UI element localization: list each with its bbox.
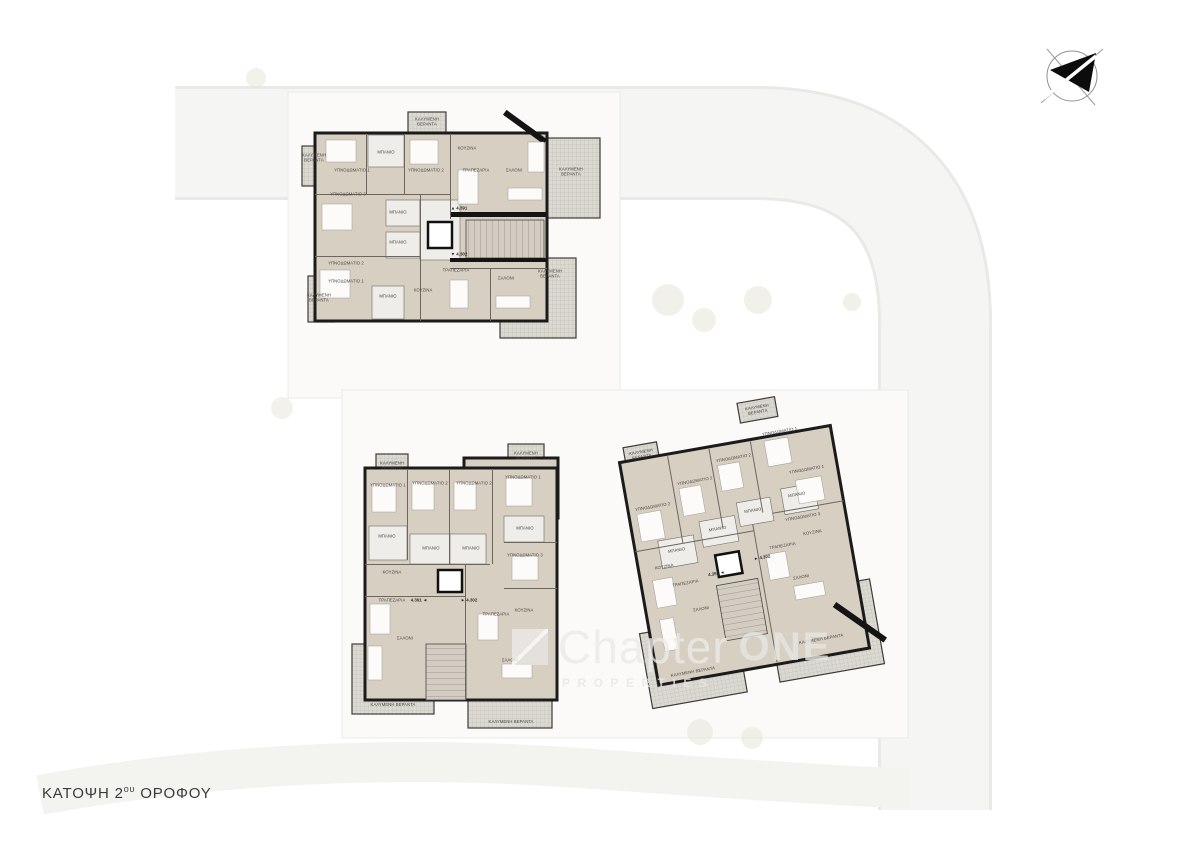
- room-label: ΚΑΛΥΜΕΝΗΒΕΡΑΝΤΑ: [559, 166, 583, 176]
- plan-title: ΚΑΤΟΨΗ 2ου ΟΡΟΦΟΥ: [42, 784, 212, 802]
- room-label: ΜΠΑΝΙΟ: [422, 546, 440, 551]
- level-note: ▼ 4.302: [451, 252, 468, 257]
- room-label: ΥΠΝΟΔΩΜΑΤΙΟ 2: [412, 481, 448, 486]
- room-label: ΚΟΥΖΙΝΑ: [383, 570, 402, 575]
- room-label: ΥΠΝΟΔΩΜΑΤΙΟ 1: [328, 279, 364, 284]
- furniture: [508, 188, 542, 200]
- room-label: ΣΑΛΟΝΙ: [502, 658, 518, 663]
- elevator-shaft: [438, 570, 462, 592]
- room-label: ΜΠΑΝΙΟ: [516, 526, 534, 531]
- room-label: ΣΑΛΟΝΙ: [506, 168, 522, 173]
- floor-area: [620, 425, 870, 685]
- room-label: ΥΠΝΟΔΩΜΑΤΙΟ 3: [330, 192, 366, 197]
- room-label: ΥΠΝΟΔΩΜΑΤΙΟ 1: [334, 168, 370, 173]
- furniture: [372, 484, 396, 512]
- interior-wall: [407, 470, 408, 560]
- bathroom-area: [386, 232, 420, 258]
- room-label: ΥΠΝΟΔΩΜΑΤΙΟ 1: [505, 475, 541, 480]
- room-label: ΚΟΥΖΙΝΑ: [414, 288, 433, 293]
- interior-wall: [504, 588, 557, 589]
- interior-wall: [420, 194, 421, 321]
- furniture: [412, 482, 434, 510]
- interior-wall: [449, 470, 450, 564]
- building-top-plan: ΥΠΝΟΔΩΜΑΤΙΟ 1ΜΠΑΝΙΟΥΠΝΟΔΩΜΑΤΙΟ 2ΚΟΥΖΙΝΑΤ…: [300, 108, 602, 343]
- furniture: [679, 485, 706, 516]
- furniture: [637, 510, 665, 542]
- furniture: [496, 296, 530, 308]
- interior-wall: [365, 564, 490, 565]
- veranda-area: [543, 138, 600, 218]
- room-label: ΤΡΑΠΕΖΑΡΙΑ: [463, 168, 490, 173]
- room-label: ΤΡΑΠΕΖΑΡΙΑ: [483, 612, 510, 617]
- interior-wall: [366, 135, 367, 195]
- furniture: [506, 478, 532, 506]
- floor-plan-canvas: ΥΠΝΟΔΩΜΑΤΙΟ 1ΜΠΑΝΙΟΥΠΝΟΔΩΜΑΤΙΟ 2ΚΟΥΖΙΝΑΤ…: [0, 0, 1200, 849]
- room-label: ΣΑΛΟΝΙ: [498, 276, 514, 281]
- room-label: ΚΑΛΥΜΕΝΗΒΕΡΑΝΤΑ: [380, 460, 404, 470]
- furniture: [458, 170, 478, 204]
- furniture: [764, 437, 792, 467]
- room-label: ΚΑΛΥΜΕΝΗΒΕΡΑΝΤΑ: [538, 268, 562, 278]
- room-label: ΜΠΑΝΙΟ: [379, 294, 397, 299]
- furniture: [502, 664, 532, 678]
- room-label: ΥΠΝΟΔΩΜΑΤΙΟ 2: [408, 168, 444, 173]
- building-bottom-right-plan: ΚΑΛΥΜΕΝΗΒΕΡΑΝΤΑΚΑΛΥΜΕΝΗΒΕΡΑΝΤΑΥΠΝΟΔΩΜΑΤΙ…: [590, 374, 926, 740]
- room-label: ΤΡΑΠΕΖΑΡΙΑ: [379, 598, 406, 603]
- furniture: [322, 204, 352, 230]
- staircase: [426, 644, 466, 700]
- building-bottom-left-plan: ΚΑΛΥΜΕΝΗΒΕΡΑΝΤΑΚΑΛΥΜΕΝΗΒΕΡΑΝΤΑΥΠΝΟΔΩΜΑΤΙ…: [352, 438, 564, 736]
- wall-segment: [450, 258, 546, 262]
- plan-title-prefix: ΚΑΤΟΨΗ 2: [42, 785, 124, 802]
- staircase: [466, 220, 544, 258]
- furniture: [326, 140, 356, 162]
- furniture: [454, 482, 476, 510]
- room-label: ΚΑΛΥΜΕΝΗ ΒΕΡΑΝΤΑ: [371, 702, 416, 707]
- buildings-layer: ΥΠΝΟΔΩΜΑΤΙΟ 1ΜΠΑΝΙΟΥΠΝΟΔΩΜΑΤΙΟ 2ΚΟΥΖΙΝΑΤ…: [0, 0, 1200, 849]
- furniture: [795, 476, 825, 504]
- room-label: ΚΑΛΥΜΕΝΗΒΕΡΑΝΤΑ: [302, 152, 326, 162]
- furniture: [528, 142, 544, 172]
- interior-wall: [504, 542, 557, 543]
- room-label: ΤΡΑΠΕΖΑΡΙΑ: [443, 268, 470, 273]
- north-arrow-icon: [1036, 40, 1108, 112]
- furniture: [368, 646, 382, 680]
- room-label: ΚΑΛΥΜΕΝΗ ΒΕΡΑΝΤΑ: [489, 719, 534, 724]
- furniture: [450, 280, 468, 308]
- room-label: ΜΠΑΝΙΟ: [389, 210, 407, 215]
- furniture: [718, 462, 744, 491]
- plan-title-ordinal: ου: [124, 784, 136, 794]
- level-note: ► 4.302: [461, 598, 478, 603]
- room-label: ΚΑΛΥΜΕΝΗΒΕΡΑΝΤΑ: [415, 116, 439, 126]
- room-label: ΚΑΛΥΜΕΝΗΒΕΡΑΝΤΑ: [307, 292, 331, 302]
- room-label: ΥΠΝΟΔΩΜΑΤΙΟ 1: [370, 483, 406, 488]
- interior-wall: [404, 135, 405, 195]
- room-label: ΜΠΑΝΙΟ: [378, 534, 396, 539]
- furniture: [478, 614, 498, 640]
- room-label: ΜΠΑΝΙΟ: [377, 150, 395, 155]
- bathroom-area: [369, 526, 407, 560]
- interior-wall: [315, 256, 420, 257]
- room-label: ΜΠΑΝΙΟ: [389, 240, 407, 245]
- wall-segment: [450, 212, 546, 217]
- room-label: ΚΑΛΥΜΕΝΗΒΕΡΑΝΤΑ: [514, 450, 538, 460]
- plan-title-suffix: ΟΡΟΦΟΥ: [135, 785, 211, 802]
- furniture: [370, 604, 390, 634]
- room-label: ΥΠΝΟΔΩΜΑΤΙΟ 2: [456, 481, 492, 486]
- room-label: ΣΑΛΟΝΙ: [397, 636, 413, 641]
- level-note: ▲ 4.391: [451, 206, 468, 211]
- room-label: ΜΠΑΝΙΟ: [462, 546, 480, 551]
- elevator-shaft: [428, 222, 452, 248]
- bathroom-area: [372, 286, 404, 319]
- furniture: [512, 556, 538, 580]
- interior-wall: [465, 564, 466, 700]
- furniture: [410, 140, 438, 164]
- room-label: ΥΠΝΟΔΩΜΑΤΙΟ 2: [328, 261, 364, 266]
- level-note: 4.391 ◄: [411, 598, 428, 603]
- interior-wall: [490, 268, 491, 321]
- room-label: ΚΟΥΖΙΝΑ: [515, 608, 534, 613]
- room-label: ΥΠΝΟΔΩΜΑΤΙΟ 3: [507, 553, 543, 558]
- interior-wall: [492, 470, 493, 564]
- room-label: ΚΟΥΖΙΝΑ: [458, 146, 477, 151]
